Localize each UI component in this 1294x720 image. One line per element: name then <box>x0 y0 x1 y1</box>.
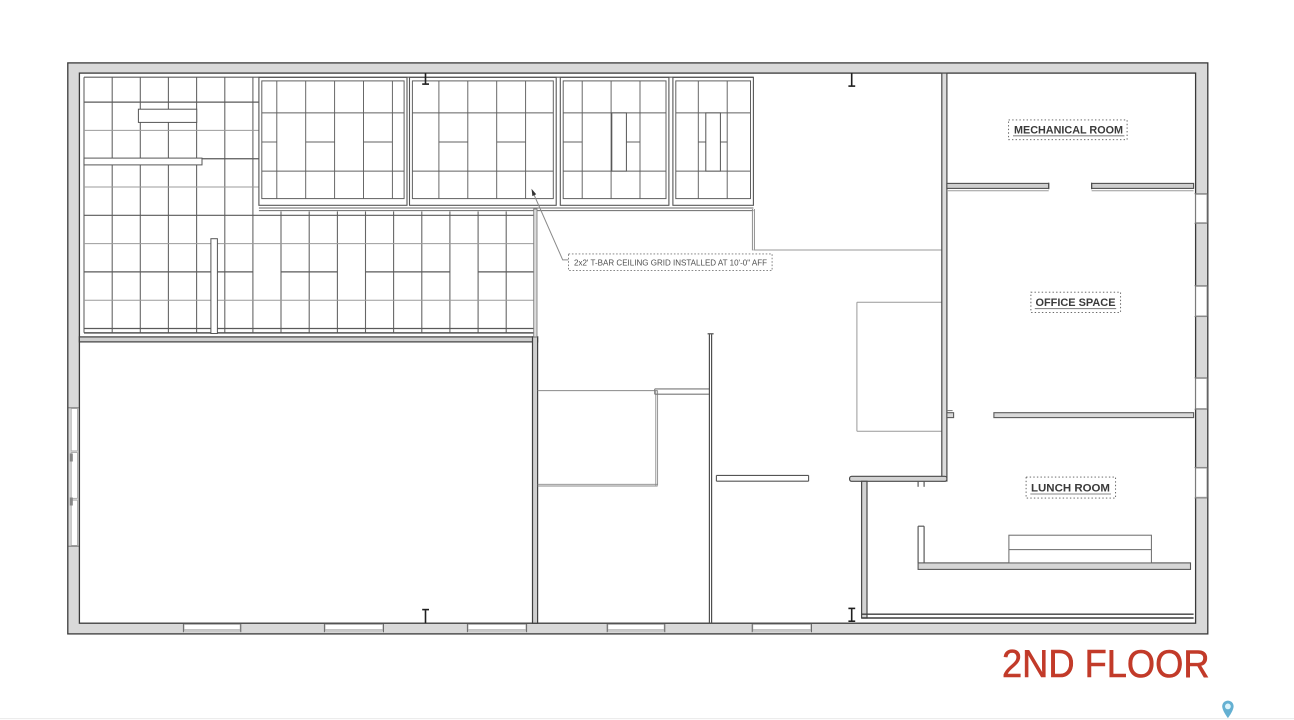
svg-text:2x2' T-BAR CEILING GRID INSTAL: 2x2' T-BAR CEILING GRID INSTALLED AT 10'… <box>574 257 767 267</box>
svg-text:MECHANICAL ROOM: MECHANICAL ROOM <box>1014 125 1123 137</box>
svg-text:OFFICE SPACE: OFFICE SPACE <box>1036 297 1116 309</box>
svg-text:2ND FLOOR: 2ND FLOOR <box>1002 643 1210 686</box>
svg-text:LUNCH ROOM: LUNCH ROOM <box>1031 483 1110 495</box>
